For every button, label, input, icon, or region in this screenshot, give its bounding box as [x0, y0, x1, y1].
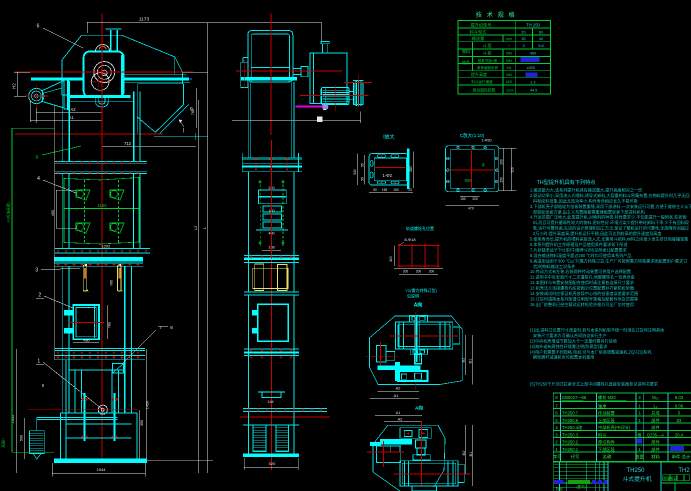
svg-text:技 术 规 格: 技 术 规 格 — [476, 11, 516, 19]
svg-text:TH型提升机具有下列特点: TH型提升机具有下列特点 — [537, 178, 596, 186]
svg-text:320: 320 — [511, 167, 515, 173]
svg-text:蜗轮蜗杆减速机也可配置本机使用: 蜗轮蜗杆减速机也可配置本机使用 — [533, 354, 594, 360]
svg-text:780: 780 — [110, 280, 114, 286]
svg-text:TH250.1: TH250.1 — [562, 447, 579, 452]
svg-text:200: 200 — [500, 159, 504, 165]
svg-text:Q235—A: Q235—A — [647, 433, 664, 438]
svg-text:5.8: 5.8 — [538, 44, 543, 48]
svg-text:部件: 部件 — [651, 446, 659, 453]
svg-text:480: 480 — [83, 339, 89, 343]
svg-text:8: 8 — [170, 325, 173, 330]
svg-text:MM: MM — [506, 59, 512, 63]
svg-text:材料: 材料 — [651, 454, 660, 461]
svg-text:40: 40 — [539, 37, 543, 41]
svg-text:55: 55 — [361, 163, 365, 167]
svg-text:A1: A1 — [396, 411, 401, 415]
svg-text:10.传动方式有左装,右装两种传动装置可供用户选择配置: 10.传动方式有左装,右装两种传动装置可供用户选择配置 — [530, 268, 631, 274]
svg-text:15.订货时请按本系列型谱注明型号规格及配套件供货范围等: 15.订货时请按本系列型谱注明型号规格及配套件供货范围等 — [530, 296, 638, 302]
svg-text:1120: 1120 — [97, 203, 107, 208]
svg-text:1173: 1173 — [139, 17, 150, 23]
svg-text:780: 780 — [108, 322, 112, 328]
svg-text:200: 200 — [403, 270, 409, 274]
svg-text:500: 500 — [20, 435, 24, 441]
svg-text:765: 765 — [191, 109, 195, 115]
svg-text:M₂₀: M₂₀ — [652, 395, 659, 400]
svg-text:象,运行可靠性高,先进的设计原理和加工方法,保证了整机运行的: 象,运行可靠性高,先进的设计原理和加工方法,保证了整机运行的可靠性,无故障时间超… — [533, 225, 689, 231]
svg-text:料,而且可提升磨琢性较大的物料,密封性好,环境污染少提升带轮: 料,而且可提升磨琢性较大的物料,密封性好,环境污染少提升带轮卸料干净,少于有回料… — [533, 219, 689, 225]
svg-text:B1: B1 — [469, 359, 473, 364]
svg-text:H2: H2 — [12, 83, 17, 89]
svg-text:代号: 代号 — [571, 454, 580, 461]
svg-text:B: B — [35, 155, 38, 160]
svg-text:144: 144 — [267, 400, 273, 404]
svg-text:A2: A2 — [396, 387, 401, 391]
svg-text:TH250.7: TH250.7 — [562, 411, 579, 416]
svg-text:物料: 物料 — [462, 48, 470, 54]
svg-text:TH 250: TH 250 — [526, 23, 540, 28]
svg-text:200: 200 — [500, 177, 504, 183]
svg-text:83: 83 — [677, 418, 682, 423]
svg-text:340: 340 — [353, 169, 357, 175]
svg-text:470: 470 — [468, 207, 474, 211]
svg-text:GB5027—86: GB5027—86 — [562, 395, 587, 400]
svg-text:13.机壳法兰连接螺栓均应按图示位置配置并拧紧防松垫圈: 13.机壳法兰连接螺栓均应按图示位置配置并拧紧防松垫圈 — [530, 285, 634, 291]
svg-text:(4)用户若需要不同规格,电机,可与本厂协商调整减速机,ZQ: (4)用户若需要不同规格,电机,可与本厂协商调整减速机,ZQ/JZQ系列, — [530, 348, 652, 354]
svg-text:14.安装调试时应保证机壳各段中心线的铅垂度误差要求范围: 14.安装调试时应保证机壳各段中心线的铅垂度误差要求范围 — [530, 290, 638, 296]
svg-text:标记: 标记 — [556, 486, 563, 491]
svg-text:(1)出,进料口位置尺寸改变时,若与本系列机型不统一时须在订: (1)出,进料口位置尺寸改变时,若与本系列机型不统一时须在订货时注明具体 — [530, 327, 664, 333]
svg-text:(3)海外或有腐蚀性环境需注明(防腐型)要求: (3)海外或有腐蚀性环境需注明(防腐型)要求 — [530, 343, 607, 349]
svg-text:16.出厂前整机已经空载试运转检验合格方可出厂交付使用: 16.出厂前整机已经空载试运转检验合格方可出厂交付使用 — [530, 301, 634, 307]
svg-text:TH250.2: TH250.2 — [562, 440, 579, 445]
svg-text:1355: 1355 — [11, 415, 15, 423]
svg-text:520: 520 — [269, 461, 276, 466]
svg-text:(5)TH250千斤顶式拉紧全式上部中间螺栓孔直接安装图参见: (5)TH250千斤顶式拉紧全式上部中间螺栓孔直接安装图参见说明书要求. — [530, 381, 659, 387]
svg-text:3: 3 — [522, 44, 524, 48]
svg-text:B1: B1 — [469, 452, 473, 457]
svg-text:≥320: ≥320 — [527, 66, 535, 70]
svg-text:200: 200 — [429, 270, 435, 274]
svg-text:2.驱动功率小,采用流入式喂料,诱导式卸料,大容量的料斗密集: 2.驱动功率小,采用流入式喂料,诱导式卸料,大容量的料斗密集布置,在物料提升时几… — [530, 192, 689, 198]
svg-text:12.本图样与布置安装图配合使用时请注意各连接尺寸要求: 12.本图样与布置安装图配合使用时请注意各连接尺寸要求 — [530, 279, 634, 285]
svg-text:L2: L2 — [193, 225, 198, 230]
svg-text:TH250.6: TH250.6 — [562, 418, 579, 423]
svg-text:TH250.3: TH250.3 — [562, 433, 579, 438]
svg-text:M/S: M/S — [506, 80, 513, 84]
svg-text:2: 2 — [38, 293, 41, 299]
svg-text:1.输送能力大,该系列提升机具有输送量大,提升高度相对之一倍: 1.输送能力大,该系列提升机具有输送量大,提升高度相对之一倍 — [530, 187, 642, 193]
svg-text:B2: B2 — [462, 358, 466, 363]
svg-text:3.下部机壳子部链轮为张紧装置重锤,采用下部进料,一次安装运: 3.下部机壳子部链轮为张紧装置重锤,采用下部进料,一次安装运行可靠,方便于维修主… — [530, 203, 691, 209]
svg-text:1.2: 1.2 — [530, 80, 535, 84]
svg-text:部件: 部件 — [651, 417, 659, 424]
svg-text:9.高温型适用于300 ℃以下(需方特殊订货,生产厂可按照需: 9.高温型适用于300 ℃以下(需方特殊订货,生产厂可按照需方特殊需求而配置用户… — [530, 257, 687, 263]
svg-text:(签字): (签字) — [576, 484, 585, 489]
svg-text:7.片状链条适于TH1型(牛眼牌斗)时(见附录1)配置要求: 7.片状链条适于TH1型(牛眼牌斗)时(见附录1)配置要求 — [530, 246, 627, 252]
svg-text:712: 712 — [124, 141, 132, 146]
svg-text:链条节距×宽: 链条节距×宽 — [478, 58, 498, 63]
svg-text:8.03: 8.03 — [675, 395, 684, 400]
svg-text:L₂: L₂ — [654, 404, 658, 409]
svg-text:8-Φ18: 8-Φ18 — [404, 237, 416, 242]
svg-text:420: 420 — [389, 256, 393, 262]
svg-text:数量: 数量 — [635, 454, 644, 461]
svg-text:货)的物料输送工况条件: 货)的物料输送工况条件 — [533, 263, 575, 269]
svg-text:部链轮张紧方便,由主义布置图都需重锤配置张紧下部进料机构: 部链轮张紧方便,由主义布置图都需重锤配置张紧下部进料机构 — [533, 208, 645, 214]
svg-text:斗 距: 斗 距 — [482, 51, 491, 56]
svg-text:斗 宽: 斗 宽 — [482, 42, 491, 48]
svg-text:标记: 标记 — [670, 475, 677, 480]
svg-text:150: 150 — [393, 188, 399, 192]
svg-text:安装尺寸要求方可确认合同协议执行生产: 安装尺寸要求方可确认合同协议执行生产 — [533, 332, 607, 338]
svg-text:3: 3 — [35, 268, 38, 274]
svg-text:名称: 名称 — [603, 454, 612, 461]
svg-text:350: 350 — [140, 420, 144, 426]
svg-text:30: 30 — [521, 37, 525, 41]
svg-text:总成: 总成 — [651, 410, 659, 417]
svg-text:高度H: 高度H — [1, 438, 6, 448]
svg-text:H(标准高度): H(标准高度) — [6, 202, 11, 221]
svg-text:23: 23 — [408, 188, 412, 192]
svg-text:A1: A1 — [394, 394, 399, 398]
svg-text:TH2: TH2 — [678, 468, 690, 474]
svg-text:1450: 1450 — [146, 401, 150, 409]
svg-text:200: 200 — [416, 270, 422, 274]
svg-text:5.使用寿命长,提升机的喂料采取流入式,无需用斗挖料,材料之: 5.使用寿命长,提升机的喂料采取流入式,无需用斗挖料,材料之间很少发生挤压和碰撞… — [530, 236, 688, 242]
svg-text:链条: 链条 — [462, 59, 470, 65]
svg-text:55: 55 — [361, 177, 365, 181]
svg-text:6.本系列提升机工作原理及产品使用条件要求如下所述: 6.本系列提升机工作原理及产品使用条件要求如下所述 — [530, 241, 628, 247]
svg-text:Zh: Zh — [521, 30, 525, 34]
svg-text:11.说明书中有安装尺寸二次灌浆孔,地脚螺栓孔一览表供查: 11.说明书中有安装尺寸二次灌浆孔,地脚螺栓孔一览表供查 — [530, 274, 635, 280]
svg-text:单条破断负荷: 单条破断负荷 — [477, 65, 498, 70]
svg-text:Sh: Sh — [539, 30, 544, 34]
svg-text:450: 450 — [530, 52, 536, 56]
svg-text:9.06: 9.06 — [675, 404, 684, 409]
svg-text:mm: mm — [506, 37, 512, 41]
svg-text:A2: A2 — [398, 418, 403, 422]
svg-text:1202: 1202 — [102, 245, 110, 249]
svg-text:20.4: 20.4 — [675, 433, 684, 438]
svg-text:280: 280 — [409, 166, 413, 172]
svg-text:B2: B2 — [462, 451, 466, 456]
svg-text:见说明: 见说明 — [407, 293, 419, 299]
svg-text:200: 200 — [472, 197, 478, 201]
svg-text:驱动链轮转数: 驱动链轮转数 — [473, 88, 496, 93]
svg-text:1-Φ20: 1-Φ20 — [481, 138, 491, 142]
svg-text:450: 450 — [51, 210, 55, 216]
svg-text:A2: A2 — [70, 107, 76, 112]
svg-text:150: 150 — [460, 197, 466, 201]
svg-text:单件 总计: 单件 总计 — [672, 454, 691, 461]
svg-text:KN: KN — [507, 66, 512, 70]
svg-text:部件: 部件 — [651, 439, 659, 446]
svg-text:r/min: r/min — [506, 89, 513, 93]
svg-text:155: 155 — [382, 188, 388, 192]
svg-text:1044: 1044 — [97, 467, 107, 472]
svg-text:料斗型式: 料斗型式 — [470, 28, 488, 35]
svg-text:料斗运行速度: 料斗运行速度 — [471, 79, 493, 84]
svg-text:1-Φ2: 1-Φ2 — [383, 173, 393, 178]
svg-text:MM: MM — [506, 73, 512, 77]
svg-text:轨道螺栓孔位置: 轨道螺栓孔位置 — [406, 225, 434, 231]
svg-text:90: 90 — [373, 188, 377, 192]
svg-text:料和挖料现象,因此无效功率小,构件寿命相应长久不易坏损: 料和挖料现象,因此无效功率小,构件寿命相应长久不易坏损 — [533, 197, 638, 203]
svg-text:8.混合输送物料温度不超过250 ℃时均可使用本系列产品: 8.混合输送物料温度不超过250 ℃时均可使用本系列产品 — [530, 252, 631, 258]
svg-text:I放大: I放大 — [383, 134, 394, 141]
svg-text:900: 900 — [465, 178, 473, 183]
svg-text:提升高度: 提升高度 — [471, 71, 487, 77]
svg-text:Y2(需方特殊订货): Y2(需方特殊订货) — [405, 287, 437, 293]
svg-text:4.升运范围广泛地大,此类提升机,对物料的种类,特性要求少,: 4.升运范围广泛地大,此类提升机,对物料的种类,特性要求少,不仅能提升一般粉状,… — [530, 214, 686, 220]
svg-text:A向: A向 — [414, 302, 423, 309]
svg-text:提升机型号: 提升机型号 — [471, 21, 492, 28]
svg-text:4: 4 — [37, 176, 40, 182]
svg-text:MM: MM — [506, 52, 512, 56]
svg-text:序号: 序号 — [553, 454, 562, 461]
svg-text:(2)中间机壳增减节数加大于一定量时需另行协商: (2)中间机壳增减节数加大于一定量时需另行协商 — [530, 337, 617, 343]
svg-text:2万小时,提升高度高,提升机运行平稳,因此可达到较高的提升速: 2万小时,提升高度高,提升机运行平稳,因此可达到较高的提升速度及高度 — [533, 230, 662, 236]
svg-text:1: 1 — [37, 359, 40, 365]
svg-text:44.5: 44.5 — [530, 89, 537, 93]
svg-text:输送量: 输送量 — [472, 35, 485, 42]
svg-text:斗式提升机: 斗式提升机 — [623, 475, 652, 483]
svg-text:A向: A向 — [415, 405, 423, 412]
svg-text:部件: 部件 — [651, 424, 659, 431]
svg-text:58: 58 — [482, 163, 486, 167]
svg-text:II: II — [42, 383, 44, 388]
svg-text:TH250: TH250 — [626, 468, 645, 474]
svg-text:6: 6 — [37, 24, 40, 30]
